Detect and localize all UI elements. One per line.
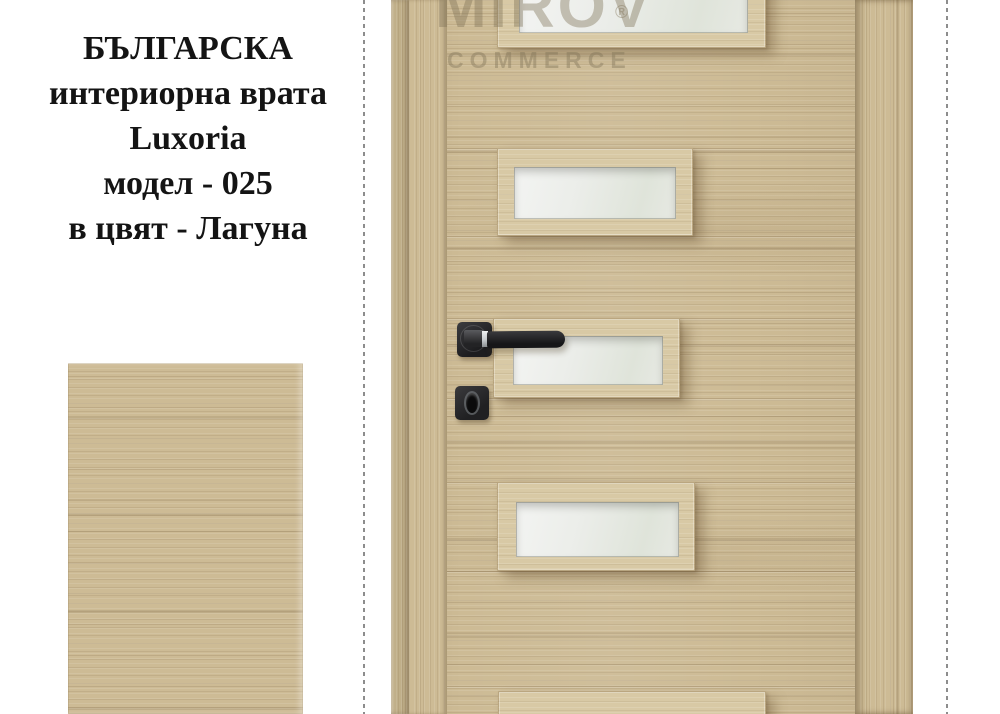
color-swatch-laguna: [68, 363, 303, 714]
panel-seam: [444, 398, 855, 400]
door-window-4: [497, 482, 695, 571]
info-color: в цвят - Лагуна: [8, 206, 368, 251]
product-info: БЪЛГАРСКА интериорна врата Luxoria модел…: [8, 26, 368, 251]
info-product-type: интериорна врата: [8, 71, 368, 116]
product-sheet: БЪЛГАРСКА интериорна врата Luxoria модел…: [0, 0, 1000, 714]
glass-pane-4: [516, 502, 679, 557]
info-brand: Luxoria: [8, 116, 368, 161]
handle-lever: [487, 331, 565, 349]
info-model: модел - 025: [8, 161, 368, 206]
door-window-5: [498, 691, 766, 714]
glass-pane-2: [514, 167, 676, 219]
keyhole-escutcheon: [455, 386, 489, 420]
keyhole-icon: [466, 393, 478, 413]
divider-right-dashed: [946, 0, 948, 714]
door-stile-right: [855, 0, 913, 714]
door-edge-strip: [391, 0, 409, 714]
door-window-1: [497, 0, 766, 48]
door-stile-left: [409, 0, 447, 714]
info-origin: БЪЛГАРСКА: [8, 26, 368, 71]
panel-seam: [444, 236, 855, 238]
divider-left-dashed: [363, 0, 365, 714]
door-render: MIROV ® COMMERCE: [391, 0, 913, 714]
door-window-2: [497, 148, 693, 236]
handle-neck: [464, 330, 484, 347]
panel-seam: [444, 571, 855, 573]
panel-seam: [444, 686, 855, 688]
glass-pane-1: [519, 0, 748, 33]
door-window-3: [493, 318, 680, 398]
